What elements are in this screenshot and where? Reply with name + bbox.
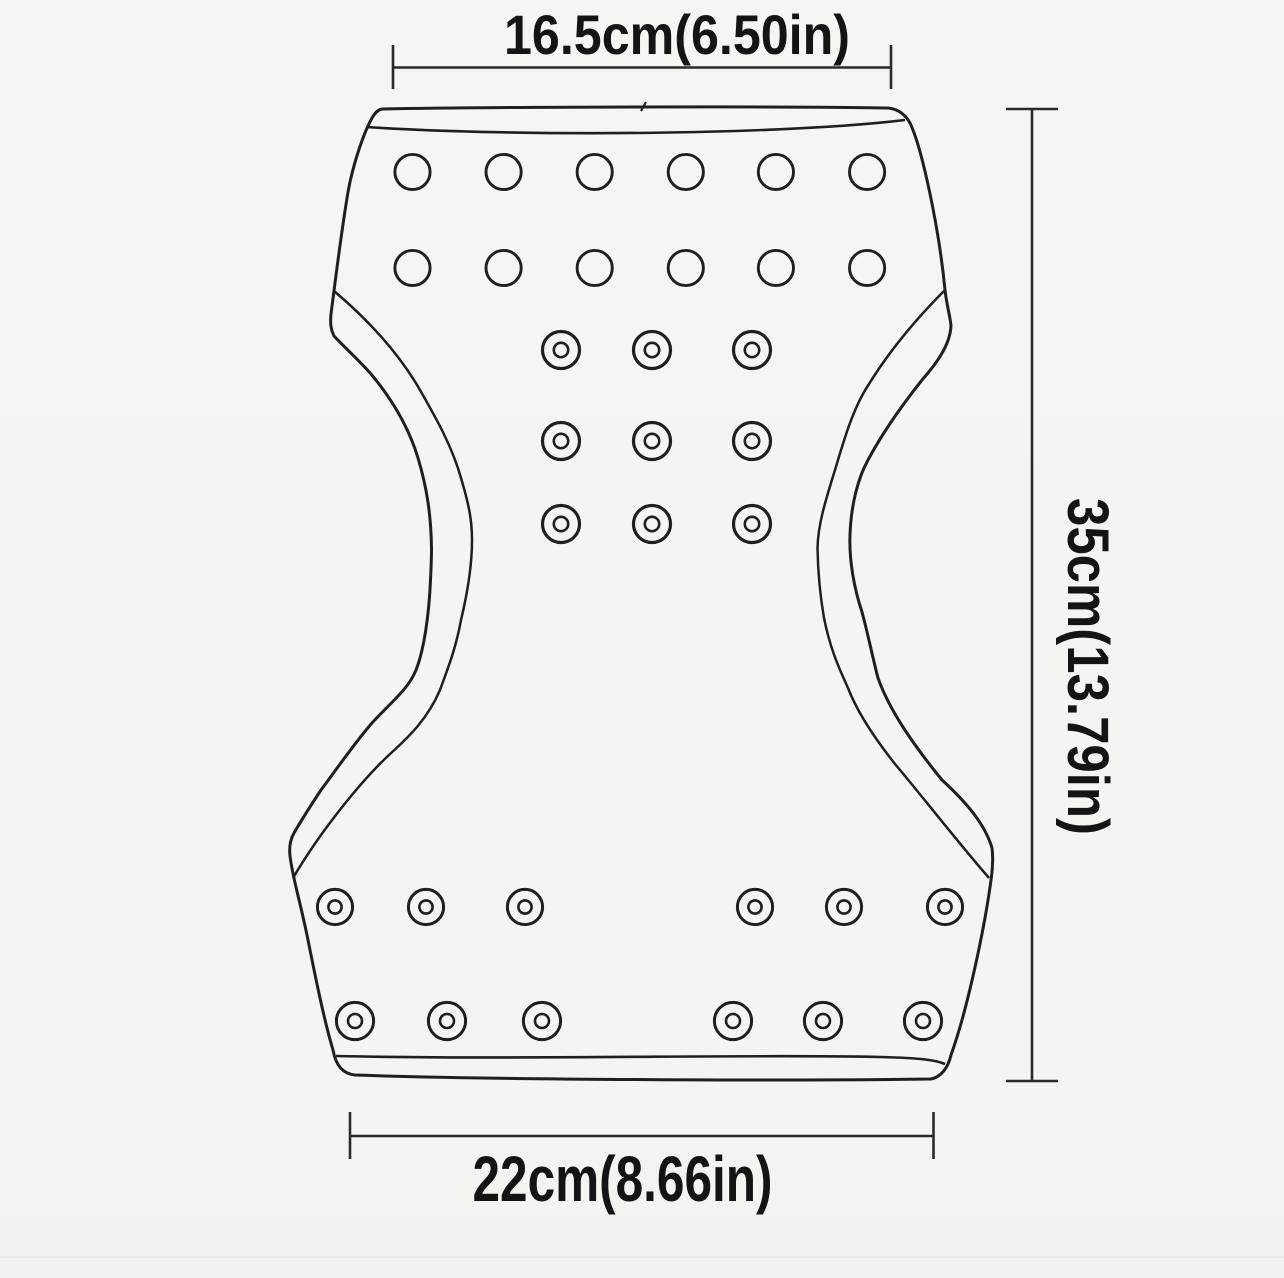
svg-text:16.5cm(6.50in): 16.5cm(6.50in) [504, 3, 850, 66]
svg-text:22cm(8.66in): 22cm(8.66in) [473, 1143, 773, 1215]
svg-text:35cm(13.79in): 35cm(13.79in) [1055, 498, 1120, 835]
